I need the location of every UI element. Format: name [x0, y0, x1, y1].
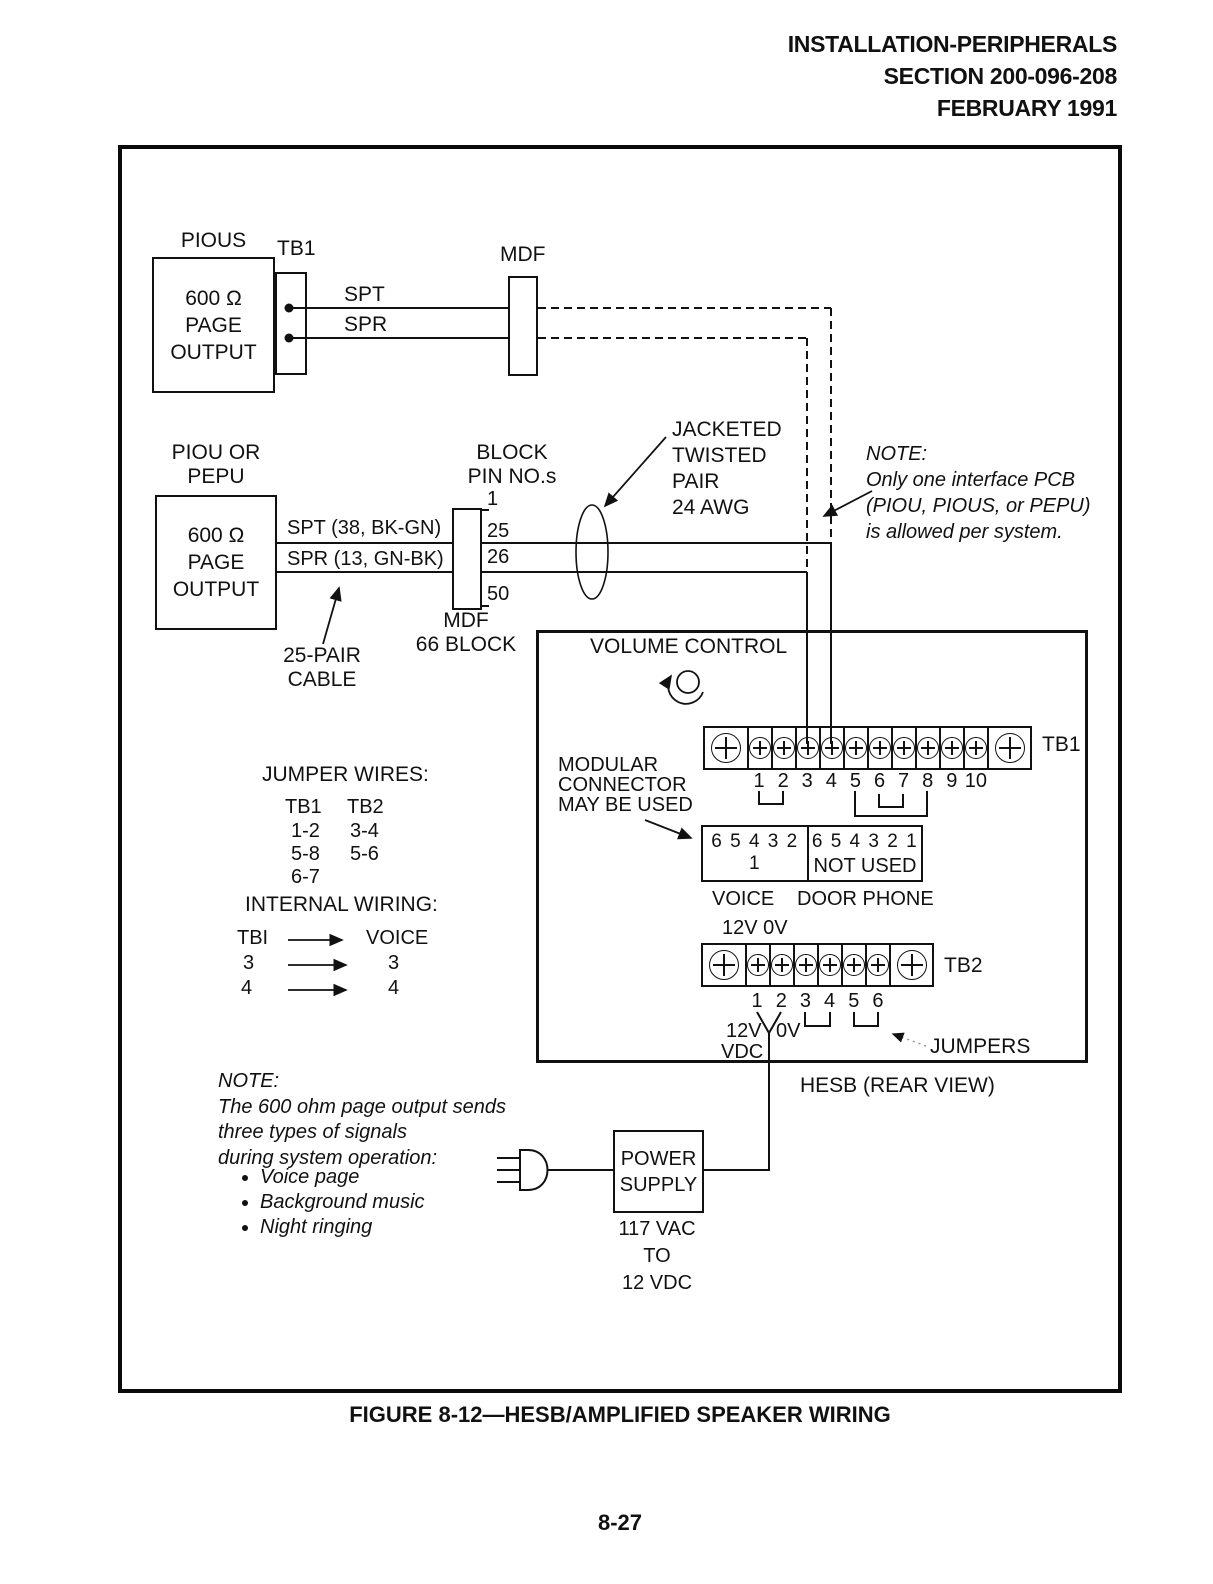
- tb2-num: 6: [866, 990, 890, 1013]
- piou-label-line: PEPU: [155, 465, 277, 489]
- tb2-num: 3: [793, 990, 817, 1013]
- modular-note-line: MAY BE USED: [558, 795, 693, 815]
- power-rating-line: 117 VAC: [592, 1216, 722, 1243]
- jumper-cell: 3-4: [350, 820, 379, 843]
- screw-icon: [821, 737, 843, 759]
- header-line-2: SECTION 200-096-208: [788, 60, 1117, 92]
- note-line: (PIOU, PIOUS, or PEPU): [866, 493, 1090, 519]
- terminal-cell: [867, 728, 891, 768]
- screw-icon: [773, 737, 795, 759]
- note-page-output: NOTE: The 600 ohm page output sends thre…: [218, 1069, 506, 1171]
- note-title: NOTE:: [218, 1069, 506, 1095]
- jumper-col-tb2: TB2: [347, 796, 384, 819]
- terminal-cell: [841, 945, 865, 985]
- dc-0v-label: 0V: [776, 1020, 800, 1043]
- note-line: three types of signals: [218, 1120, 506, 1146]
- screw-icon: [747, 954, 769, 976]
- internal-wiring-title: INTERNAL WIRING:: [245, 893, 438, 917]
- tb1-num: 8: [916, 770, 940, 793]
- tb1-num: 1: [747, 770, 771, 793]
- screw-icon: [771, 954, 793, 976]
- tb1-num: 10: [964, 770, 988, 793]
- terminal-cell: [843, 728, 867, 768]
- screw-icon: [845, 737, 867, 759]
- pious-label: PIOUS: [152, 229, 275, 253]
- mdf-block: [508, 276, 538, 376]
- jacketed-pair-line: 24 AWG: [672, 495, 782, 521]
- tb1-num: 7: [892, 770, 916, 793]
- tb2-strip-label: TB2: [944, 954, 983, 978]
- terminal-cell: [745, 945, 769, 985]
- screw-icon: [897, 950, 927, 980]
- pin-number-1: 1: [487, 488, 498, 511]
- jacketed-pair-label: JACKETED TWISTED PAIR 24 AWG: [672, 417, 782, 521]
- terminal-cell: [915, 728, 939, 768]
- screw-icon: [941, 737, 963, 759]
- screw-icon: [711, 733, 741, 763]
- tb1-num: 9: [940, 770, 964, 793]
- tb1-top-label: TB1: [277, 237, 316, 261]
- tb1-num: 5: [843, 770, 867, 793]
- screw-icon: [867, 954, 889, 976]
- mdf-label: MDF: [500, 243, 546, 267]
- tb2-terminal-strip: [701, 943, 934, 987]
- door-phone-jack-pins: 6 5 4 3 2 1: [809, 831, 921, 853]
- internal-wiring-cell: 4: [241, 977, 252, 1000]
- header-line-1: INSTALLATION-PERIPHERALS: [788, 28, 1117, 60]
- piou-box-line: OUTPUT: [173, 576, 259, 603]
- spr-pair-label: SPR (13, GN-BK): [287, 548, 444, 571]
- signal-types-list: Voice page Background music Night ringin…: [232, 1165, 425, 1240]
- dc-12v-label: 12V: [726, 1020, 762, 1043]
- not-used-label: NOT USED: [809, 855, 921, 878]
- volume-control-label: VOLUME CONTROL: [590, 635, 787, 659]
- door-phone-label: DOOR PHONE: [797, 888, 934, 911]
- mdf-66-block-label-line: 66 BLOCK: [414, 633, 518, 657]
- internal-wiring-cell: 3: [243, 952, 254, 975]
- note-line: The 600 ohm page output sends: [218, 1095, 506, 1121]
- terminal-cell: [795, 728, 819, 768]
- piou-label-line: PIOU OR: [155, 441, 277, 465]
- piou-box-line: PAGE: [188, 549, 245, 576]
- internal-wiring-cell: VOICE: [366, 927, 428, 950]
- screw-icon: [893, 737, 915, 759]
- jumper-cell: 1-2: [291, 820, 320, 843]
- spt-wire-label: SPT: [344, 283, 385, 307]
- jumper-cell: 6-7: [291, 866, 320, 889]
- note-title: NOTE:: [866, 441, 1090, 467]
- terminal-cell: [705, 728, 747, 768]
- tb1-num: 6: [867, 770, 891, 793]
- internal-wiring-cell: 3: [388, 952, 399, 975]
- modular-connector-note: MODULAR CONNECTOR MAY BE USED: [558, 755, 693, 815]
- modular-connector: 6 5 4 3 2 1 6 5 4 3 2 1 NOT USED: [701, 825, 923, 882]
- power-rating-line: TO: [592, 1243, 722, 1270]
- modular-note-line: MODULAR: [558, 755, 693, 775]
- tb2-num: 5: [842, 990, 866, 1013]
- screw-icon: [819, 954, 841, 976]
- jacketed-pair-line: TWISTED: [672, 443, 782, 469]
- figure-caption: FIGURE 8-12—HESB/AMPLIFIED SPEAKER WIRIN…: [118, 1402, 1122, 1428]
- tb1-strip-label: TB1: [1042, 733, 1081, 757]
- signal-type-item: Night ringing: [260, 1215, 425, 1240]
- voice-jack: 6 5 4 3 2 1: [703, 827, 807, 880]
- terminal-cell: [987, 728, 1031, 768]
- terminal-cell: [769, 945, 793, 985]
- voice-jack-pins: 6 5 4 3 2 1: [703, 831, 807, 875]
- note-interface-pcb: NOTE: Only one interface PCB (PIOU, PIOU…: [866, 441, 1090, 545]
- tb2-terminal-numbers: 1 2 3 4 5 6: [745, 990, 890, 1013]
- tb2-num: 2: [769, 990, 793, 1013]
- terminal-cell: [963, 728, 987, 768]
- note-line: is allowed per system.: [866, 519, 1090, 545]
- terminal-cell: [891, 728, 915, 768]
- pious-box-line: OUTPUT: [170, 339, 256, 366]
- pin-number-50: 50: [487, 583, 509, 606]
- internal-wiring-cell: 4: [388, 977, 399, 1000]
- spr-wire-label: SPR: [344, 313, 387, 337]
- mdf-66-block-label: MDF 66 BLOCK: [414, 609, 518, 657]
- signal-type-item: Voice page: [260, 1165, 425, 1190]
- screw-icon: [797, 737, 819, 759]
- terminal-cell: [819, 728, 843, 768]
- pious-box-line: PAGE: [185, 312, 242, 339]
- screw-icon: [869, 737, 891, 759]
- pin-number-26: 26: [487, 546, 509, 569]
- tb2-voltage-label: 12V 0V: [722, 917, 788, 940]
- power-rating-label: 117 VAC TO 12 VDC: [592, 1216, 722, 1297]
- page-header: INSTALLATION-PERIPHERALS SECTION 200-096…: [788, 28, 1117, 124]
- modular-note-line: CONNECTOR: [558, 775, 693, 795]
- cable-label-line: 25-PAIR: [280, 644, 364, 668]
- screw-icon: [749, 737, 771, 759]
- mdf-66-block: [452, 508, 482, 610]
- header-line-3: FEBRUARY 1991: [788, 92, 1117, 124]
- block-pin-heading-line: PIN NO.s: [457, 465, 567, 489]
- terminal-cell: [771, 728, 795, 768]
- cable-label-line: CABLE: [280, 668, 364, 692]
- screw-icon: [709, 950, 739, 980]
- mdf-66-block-label-line: MDF: [414, 609, 518, 633]
- screw-icon: [965, 737, 987, 759]
- document-page: INSTALLATION-PERIPHERALS SECTION 200-096…: [0, 0, 1213, 1584]
- screw-icon: [843, 954, 865, 976]
- tb1-num: 3: [795, 770, 819, 793]
- tb1-terminal-strip: [703, 726, 1032, 770]
- piou-label: PIOU OR PEPU: [155, 441, 277, 489]
- block-pin-heading: BLOCK PIN NO.s: [457, 441, 567, 489]
- jumpers-label: JUMPERS: [930, 1035, 1030, 1059]
- pin-number-25: 25: [487, 520, 509, 543]
- cable-label: 25-PAIR CABLE: [280, 644, 364, 692]
- hesb-caption: HESB (REAR VIEW): [800, 1074, 995, 1098]
- jumper-wires-title: JUMPER WIRES:: [262, 763, 429, 787]
- tb1-num: 4: [819, 770, 843, 793]
- door-phone-jack: 6 5 4 3 2 1 NOT USED: [807, 827, 921, 880]
- page-number: 8-27: [118, 1510, 1122, 1536]
- terminal-cell: [817, 945, 841, 985]
- terminal-cell: [703, 945, 745, 985]
- voice-label: VOICE: [712, 888, 774, 911]
- tb2-num: 1: [745, 990, 769, 1013]
- tb1-num: 2: [771, 770, 795, 793]
- jacketed-pair-line: JACKETED: [672, 417, 782, 443]
- power-supply-box: POWER SUPPLY: [613, 1130, 704, 1213]
- jumper-cell: 5-8: [291, 843, 320, 866]
- power-rating-line: 12 VDC: [592, 1270, 722, 1297]
- piou-box: 600 Ω PAGE OUTPUT: [155, 495, 277, 630]
- piou-box-line: 600 Ω: [188, 522, 245, 549]
- spt-pair-label: SPT (38, BK-GN): [287, 517, 441, 540]
- terminal-cell: [939, 728, 963, 768]
- screw-icon: [995, 733, 1025, 763]
- jacketed-pair-line: PAIR: [672, 469, 782, 495]
- power-supply-line: POWER: [621, 1146, 697, 1172]
- screw-icon: [917, 737, 939, 759]
- jumper-col-tb1: TB1: [285, 796, 322, 819]
- power-supply-line: SUPPLY: [620, 1172, 697, 1198]
- terminal-cell: [793, 945, 817, 985]
- screw-icon: [795, 954, 817, 976]
- signal-type-item: Background music: [260, 1190, 425, 1215]
- block-pin-heading-line: BLOCK: [457, 441, 567, 465]
- tb1-terminal-numbers: 1 2 3 4 5 6 7 8 9 10: [747, 770, 988, 793]
- terminal-cell: [889, 945, 933, 985]
- vdc-label: VDC: [721, 1041, 763, 1064]
- terminal-cell: [865, 945, 889, 985]
- note-line: Only one interface PCB: [866, 467, 1090, 493]
- jumper-cell: 5-6: [350, 843, 379, 866]
- internal-wiring-cell: TBI: [237, 927, 268, 950]
- tb2-num: 4: [818, 990, 842, 1013]
- pious-box: 600 Ω PAGE OUTPUT: [152, 257, 275, 393]
- terminal-cell: [747, 728, 771, 768]
- pious-box-line: 600 Ω: [185, 285, 242, 312]
- tb1-terminal-block: [275, 272, 307, 375]
